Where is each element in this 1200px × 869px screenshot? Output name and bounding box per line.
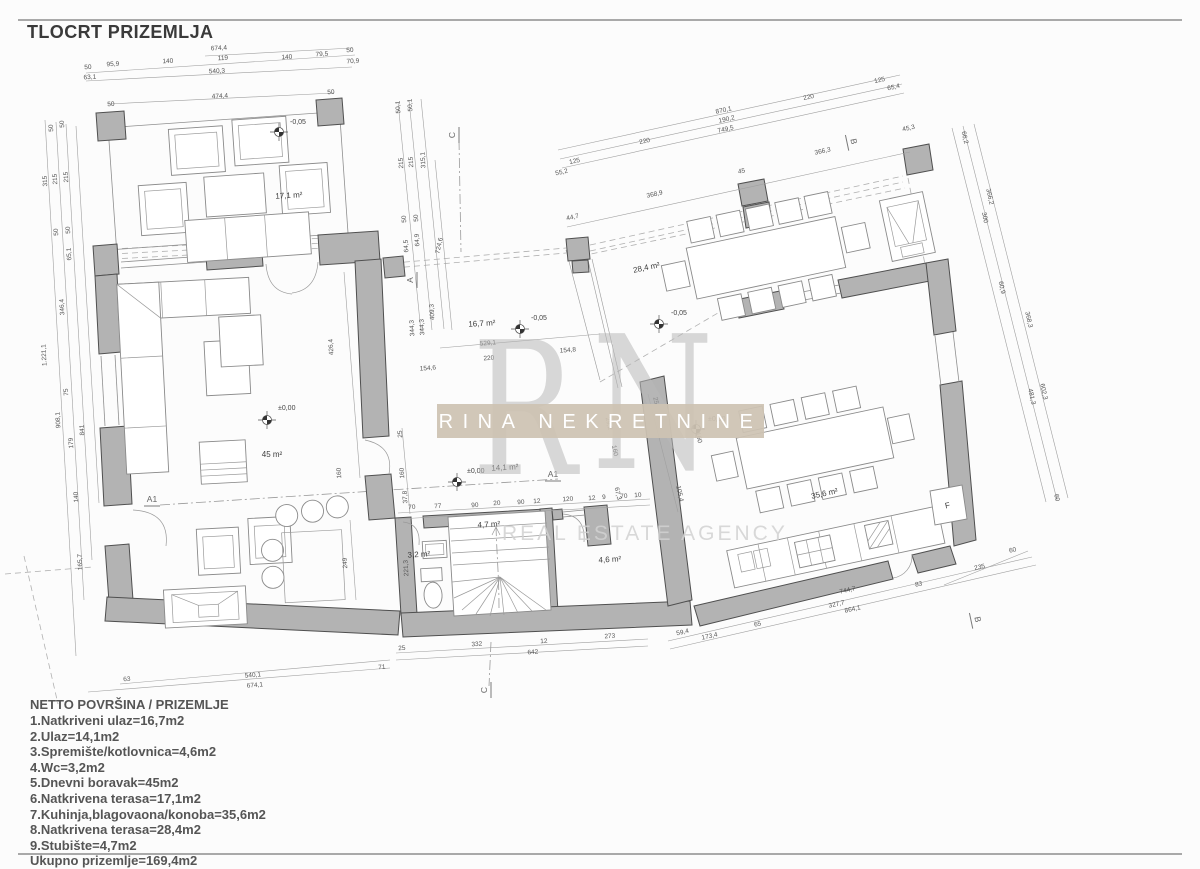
legend-item-4: 5.Dnevni boravak=45m2	[30, 775, 450, 791]
floor-plan-page: { "title": "TLOCRT PRIZEMLJA", "legend":…	[0, 0, 1200, 860]
dim-label-48: 65,4	[887, 83, 901, 93]
dim-label-63: 481,3	[1026, 388, 1036, 406]
room-area-label-4: 28,4 m²	[632, 260, 661, 275]
dim-label-22: 346,4	[59, 298, 67, 315]
dim-label-9: 540,3	[209, 68, 226, 76]
dim-label-67: 63	[123, 676, 131, 684]
dim-label-36: 50	[413, 214, 420, 222]
dim-label-45: 749,5	[717, 124, 735, 134]
dim-label-57: 66,2	[960, 131, 970, 145]
dim-label-27: 140	[73, 491, 81, 503]
terrace-furniture	[134, 114, 333, 266]
room-area-label-8: 4,6 m²	[598, 554, 621, 564]
wall-pier	[93, 244, 119, 276]
room-area-label-0: 17,1 m²	[275, 190, 303, 200]
level-symbol-part	[453, 478, 458, 483]
dim-label-26: 179	[68, 437, 76, 449]
dim-label-69: 674,1	[247, 681, 264, 689]
dim-label-19: 50	[65, 226, 72, 234]
dim-label-18: 315	[42, 175, 50, 187]
wall-kitchen-bottom	[912, 546, 956, 573]
dim-label-68: 540,1	[245, 671, 262, 679]
dim-label-80: 83	[914, 580, 923, 588]
porch-pillar	[566, 237, 590, 261]
dim-label-52: 366,3	[814, 146, 832, 156]
dim-label-0: 674,4	[211, 45, 228, 53]
dim-label-65: 235	[974, 563, 986, 572]
section-marker-A1-2: A1	[147, 494, 158, 504]
dim-label-85: 37,8	[402, 490, 410, 503]
dim-label-8: 70,9	[346, 58, 359, 66]
watermark-agency-subtitle: REAL ESTATE AGENCY	[502, 522, 788, 546]
legend-item-5: 6.Natkrivena terasa=17,1m2	[30, 791, 450, 807]
dim-label-58: 366,2	[984, 188, 994, 206]
dim-label-44: 190,2	[718, 114, 736, 124]
wall-left	[105, 544, 133, 602]
room-area-label-1: 45 m²	[262, 450, 283, 459]
level-symbol-part	[267, 420, 272, 425]
dim-label-24: 908,1	[55, 411, 63, 428]
legend-item-8: 9.Stubište=4,7m2	[30, 838, 450, 854]
level-symbol-part	[263, 416, 268, 421]
dim-label-21: 65,1	[66, 247, 74, 260]
legend-item-2: 3.Spremište/kotlovnica=4,6m2	[30, 744, 450, 760]
legend-title: NETTO POVRŠINA / PRIZEMLJE	[30, 697, 450, 712]
dim-label-42: 344,3	[419, 318, 427, 335]
dim-label-72: 332	[471, 641, 483, 649]
dim-label-39: 724,6	[434, 237, 444, 255]
dim-label-62: 602,3	[1038, 383, 1048, 401]
level-value-0: -0,05	[290, 119, 306, 126]
dim-label-106: 249	[342, 557, 350, 569]
dim-label-32: 215	[398, 157, 406, 169]
section-marker-tick-5	[969, 613, 972, 629]
outdoor-fireplace	[879, 192, 935, 262]
level-symbol-part	[457, 482, 462, 487]
dim-label-17: 215	[52, 173, 60, 185]
dim-label-40: 409,3	[429, 303, 437, 320]
dim-label-110: 154,6	[420, 364, 437, 372]
dim-label-46: 220	[803, 93, 815, 102]
dim-label-43: 870,1	[715, 105, 733, 115]
terrace-pillar	[738, 179, 768, 206]
wall-kitchen-east	[926, 259, 956, 335]
section-marker-B-5: B	[972, 616, 983, 624]
legend-item-6: 7.Kuhinja,blagovaona/konoba=35,6m2	[30, 807, 450, 823]
dim-label-74: 273	[604, 633, 616, 641]
dim-label-4: 119	[218, 55, 229, 63]
dim-label-54: 368,9	[646, 189, 664, 199]
dim-label-49: 220	[639, 137, 651, 146]
legend-item-7: 8.Natkrivena terasa=28,4m2	[30, 822, 450, 838]
dim-label-12: 50	[327, 89, 335, 96]
terrace-pillar	[316, 98, 344, 126]
dim-label-51: 55,2	[555, 168, 569, 178]
level-value-1: ±0,00	[278, 405, 296, 412]
dim-label-35: 50	[401, 215, 408, 223]
dim-label-23: 75	[63, 388, 70, 396]
section-marker-tick-4	[845, 135, 848, 151]
dim-label-6: 95,9	[106, 61, 119, 69]
wall-bottom	[105, 597, 400, 635]
dim-label-71: 25	[398, 645, 406, 653]
dim-label-14: 50	[59, 120, 66, 128]
dim-label-3: 140	[281, 54, 293, 62]
legend-item-0: 1.Natkriveni ulaz=16,7m2	[30, 713, 450, 729]
dim-label-38: 64,9	[414, 233, 422, 246]
section-marker-A-1: A	[405, 277, 415, 283]
dim-label-10: 63,1	[83, 74, 96, 82]
dim-label-64: 60	[1052, 493, 1060, 502]
dim-label-83: 25	[397, 430, 404, 438]
section-marker-B-4: B	[848, 138, 859, 146]
dim-label-15: 50	[48, 124, 55, 132]
terrace-pillar	[96, 111, 126, 141]
dim-label-28: 165,7	[77, 553, 85, 570]
legend-item-3: 4.Wc=3,2m2	[30, 760, 450, 776]
room-area-label-6: 4,7 m²	[477, 519, 500, 529]
dim-label-1: 50	[346, 47, 354, 54]
dim-label-2: 79,5	[315, 51, 328, 59]
dim-label-13: 50	[107, 101, 115, 108]
legend-items: 1.Natkriveni ulaz=16,7m22.Ulaz=14,1m23.S…	[30, 713, 450, 869]
dim-label-50: 125	[569, 157, 581, 166]
dim-label-76: 59,4	[676, 628, 690, 638]
watermark-agency-name: RINA NEKRETNINE	[437, 411, 764, 434]
wall-living-east	[365, 474, 395, 520]
level-marker-1: ±0,00	[258, 405, 296, 429]
dim-label-87: 70	[408, 504, 416, 512]
dim-label-86: 221,3	[403, 559, 411, 576]
dim-label-29: 1.221,1	[40, 344, 48, 366]
dim-label-7: 50	[84, 64, 92, 71]
terrace-pillar	[903, 144, 933, 175]
dim-label-55: 44,7	[566, 213, 580, 223]
dim-label-34: 315,1	[420, 151, 428, 168]
living-room-furniture	[117, 277, 269, 488]
dim-label-59: 300	[980, 212, 989, 224]
wall-living-east	[355, 259, 389, 438]
dim-label-75: 642	[527, 649, 539, 657]
dim-label-73: 12	[540, 638, 548, 646]
dim-label-88: 77	[434, 503, 442, 511]
dim-label-104: 426,4	[328, 338, 336, 355]
dim-label-84: 160	[399, 467, 407, 479]
section-marker-C-0: C	[447, 132, 457, 138]
room-area-label-7: 3,2 m²	[407, 549, 430, 559]
area-legend: NETTO POVRŠINA / PRIZEMLJE 1.Natkriveni …	[30, 697, 450, 869]
dim-label-25: 841	[79, 424, 87, 436]
wall-kitchen-top	[838, 263, 930, 298]
dim-label-70: 71	[378, 664, 386, 672]
legend-item-1: 2.Ulaz=14,1m2	[30, 729, 450, 745]
porch-pillar	[572, 260, 589, 273]
dim-label-31: 50,1	[407, 98, 415, 111]
dim-label-60: 60,9	[997, 281, 1007, 295]
dim-label-30: 50,1	[395, 100, 403, 113]
dim-label-56: 45	[737, 167, 746, 175]
porch-pillar	[383, 256, 405, 278]
dim-label-33: 215	[408, 156, 416, 168]
dim-label-66: 60	[1008, 546, 1017, 554]
dim-label-16: 215	[63, 171, 71, 183]
dim-label-53: 45,3	[902, 124, 916, 134]
dim-label-47: 125	[874, 76, 886, 85]
page-title: TLOCRT PRIZEMLJA	[27, 22, 213, 43]
legend-item-9: Ukupno prizemlje=169,4m2	[30, 853, 450, 869]
dim-label-41: 344,3	[409, 319, 417, 336]
dim-label-20: 50	[53, 228, 60, 236]
dim-label-11: 474,4	[212, 93, 229, 101]
dim-label-105: 160	[336, 467, 344, 479]
section-marker-C-6: C	[479, 687, 489, 693]
dim-label-78: 65	[753, 620, 762, 628]
dim-label-37: 64,5	[403, 239, 411, 252]
dim-label-82: 864,1	[844, 604, 862, 614]
dim-label-5: 140	[162, 58, 174, 66]
